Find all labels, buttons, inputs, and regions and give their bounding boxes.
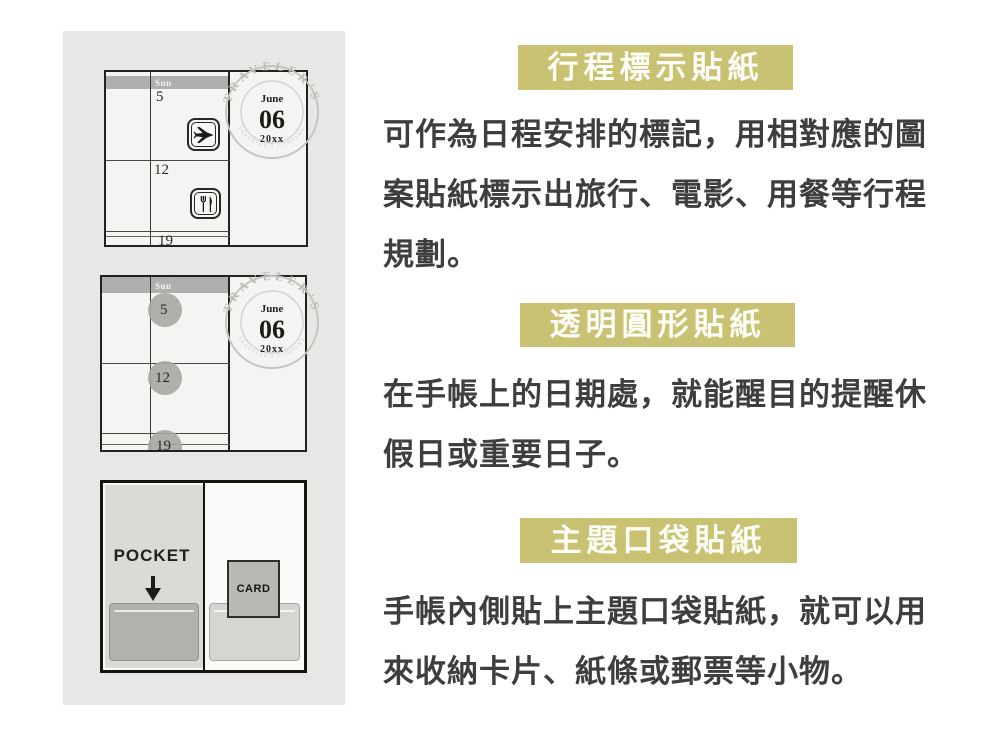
calendar-grid-line: [106, 160, 230, 161]
diagram-itinerary-calendar: Sun 5 12 19: [104, 70, 308, 247]
section-body-itinerary: 可作為日程安排的標記，用相對應的圖 案貼紙標示出旅行、電影、用餐等行程 規劃。: [383, 105, 927, 285]
paragraph-line: 假日或重要日子。: [383, 425, 927, 485]
diagram-pocket-sticker: POCKET CARD: [100, 480, 307, 673]
calendar-date: 5: [160, 302, 168, 319]
pocket-sticker: [109, 603, 199, 661]
paragraph-line: 可作為日程安排的標記，用相對應的圖: [383, 105, 927, 165]
section-title-pocket-stickers: 主題口袋貼紙: [520, 518, 797, 563]
calendar-grid-line: [106, 231, 230, 232]
dining-sticker: [190, 188, 221, 219]
calendar-date: 5: [156, 89, 164, 106]
section-body-round: 在手帳上的日期處，就能醒目的提醒休 假日或重要日子。: [383, 365, 927, 485]
panel-divider: [203, 483, 205, 670]
airplane-sticker: [187, 118, 220, 151]
product-description-page: Sun 5 12 19: [0, 0, 1000, 739]
utensils-icon: [194, 192, 217, 215]
paragraph-line: 來收納卡片、紙條或郵票等小物。: [383, 642, 927, 702]
calendar-date: 19: [156, 438, 171, 452]
section-title-round-stickers: 透明圓形貼紙: [520, 303, 795, 347]
diagram-dot-calendar: Sun 5 12 19: [100, 275, 307, 452]
calendar-grid-line: [150, 72, 151, 245]
airplane-icon: [191, 122, 216, 147]
down-arrow-icon: [141, 575, 165, 603]
paragraph-line: 手帳內側貼上主題口袋貼紙，就可以用: [383, 582, 927, 642]
paragraph-line: 案貼紙標示出旅行、電影、用餐等行程: [383, 165, 927, 225]
section-body-pocket: 手帳內側貼上主題口袋貼紙，就可以用 來收納卡片、紙條或郵票等小物。: [383, 582, 927, 702]
calendar-date: 12: [155, 370, 170, 387]
calendar-date: 19: [158, 233, 173, 250]
calendar-grid-line: [228, 72, 230, 245]
pocket-slit: [114, 610, 194, 612]
weekday-label: Sun: [155, 78, 172, 88]
pocket-label: POCKET: [103, 546, 201, 566]
paragraph-line: 規劃。: [383, 225, 927, 285]
weekday-label: Sun: [155, 281, 172, 291]
section-title-itinerary-stickers: 行程標示貼紙: [518, 45, 793, 90]
card: CARD: [227, 560, 280, 618]
calendar-date: 12: [154, 162, 169, 179]
paragraph-line: 在手帳上的日期處，就能醒目的提醒休: [383, 365, 927, 425]
